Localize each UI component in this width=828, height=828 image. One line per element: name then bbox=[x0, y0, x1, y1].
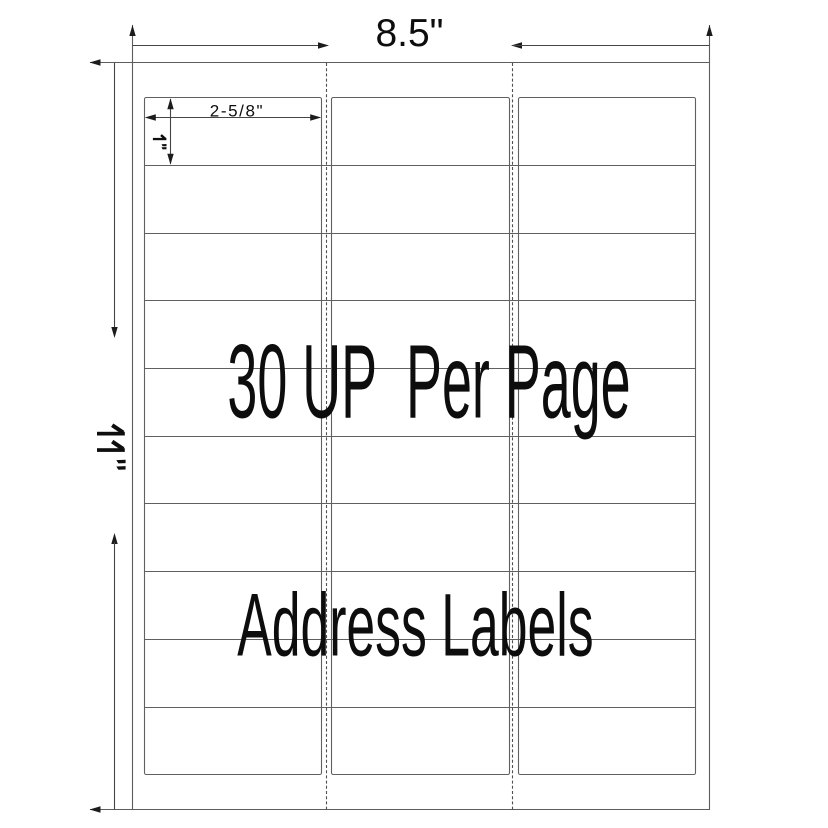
svg-text:2-5/8": 2-5/8" bbox=[210, 102, 264, 121]
svg-text:8.5": 8.5" bbox=[375, 12, 443, 55]
svg-text:30 UP Per Page: 30 UP Per Page bbox=[227, 322, 630, 440]
svg-text:Address Labels: Address Labels bbox=[237, 576, 593, 675]
